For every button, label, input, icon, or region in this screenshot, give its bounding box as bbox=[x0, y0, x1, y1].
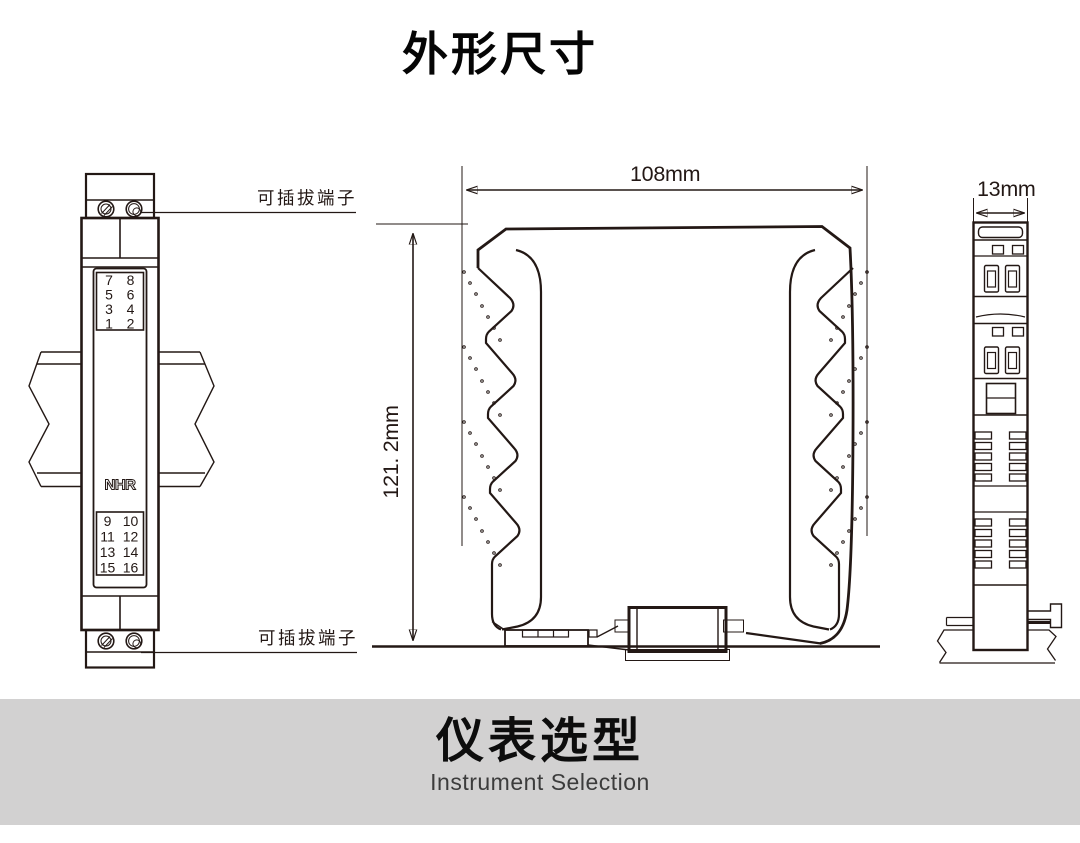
terminal-grid-top: 7 8 5 6 3 4 1 2 bbox=[97, 272, 144, 332]
terminal-number: 2 bbox=[127, 316, 135, 332]
rail-clip-side bbox=[1028, 604, 1062, 628]
side-view: 13mm bbox=[938, 177, 1062, 663]
nhr-brand-logo: NHR bbox=[104, 477, 136, 494]
terminal-number: 15 bbox=[100, 560, 116, 576]
depth-dimension: 13mm bbox=[974, 177, 1036, 226]
terminal-number: 1 bbox=[105, 316, 113, 332]
terminal-number: 11 bbox=[100, 529, 115, 545]
top-terminal-housing bbox=[86, 174, 154, 218]
terminal-number: 10 bbox=[123, 513, 139, 529]
din-rail-clip bbox=[615, 608, 744, 661]
banner-title: 仪表选型 bbox=[0, 716, 1080, 769]
width-dimension: 108mm bbox=[467, 162, 862, 190]
terminal-number: 16 bbox=[123, 560, 139, 576]
terminal-number: 14 bbox=[123, 544, 139, 560]
depth-dimension-text: 13mm bbox=[977, 177, 1036, 201]
front-module: 7 8 5 6 3 4 1 2 NHR 9 10 11 12 13 bbox=[82, 174, 159, 668]
din-rail-side bbox=[938, 618, 1057, 664]
rail-break-left bbox=[29, 352, 49, 487]
terminal-number: 13 bbox=[100, 544, 116, 560]
top-view: 108mm 121. 2mm bbox=[372, 162, 880, 661]
width-dimension-text: 108mm bbox=[630, 162, 700, 186]
side-module bbox=[974, 223, 1062, 651]
callout-label: 可插拔端子 bbox=[258, 628, 358, 648]
banner-subtitle: Instrument Selection bbox=[0, 769, 1080, 796]
module-outline bbox=[478, 227, 853, 644]
dimension-extension-lines bbox=[376, 166, 867, 546]
height-dimension: 121. 2mm bbox=[379, 234, 413, 640]
bottom-terminal-housing bbox=[86, 630, 154, 668]
terminal-dotted-guides bbox=[463, 271, 869, 567]
pluggable-terminal-callout-bottom: 可插拔端子 bbox=[141, 628, 358, 653]
front-view: 7 8 5 6 3 4 1 2 NHR 9 10 11 12 13 bbox=[29, 174, 358, 668]
page: 外形尺寸 bbox=[0, 0, 1080, 843]
screw-terminal-icon bbox=[98, 633, 142, 649]
vent-slots-upper bbox=[975, 432, 1026, 481]
pluggable-terminal-callout-top: 可插拔端子 bbox=[141, 188, 357, 213]
height-dimension-text: 121. 2mm bbox=[379, 405, 403, 498]
terminal-grid-bottom: 9 10 11 12 13 14 15 16 bbox=[97, 512, 144, 576]
dimension-drawing: 7 8 5 6 3 4 1 2 NHR 9 10 11 12 13 bbox=[0, 0, 1080, 700]
terminal-number: 12 bbox=[123, 529, 139, 545]
rail-break-right bbox=[195, 352, 214, 487]
terminal-number: 9 bbox=[104, 513, 112, 529]
vent-slots-lower bbox=[975, 519, 1026, 568]
top-view-module bbox=[372, 227, 880, 661]
screw-terminal-icon bbox=[98, 201, 142, 217]
callout-label: 可插拔端子 bbox=[257, 188, 357, 208]
din-rail-front bbox=[29, 352, 214, 487]
section-banner: 仪表选型 Instrument Selection bbox=[0, 699, 1080, 825]
